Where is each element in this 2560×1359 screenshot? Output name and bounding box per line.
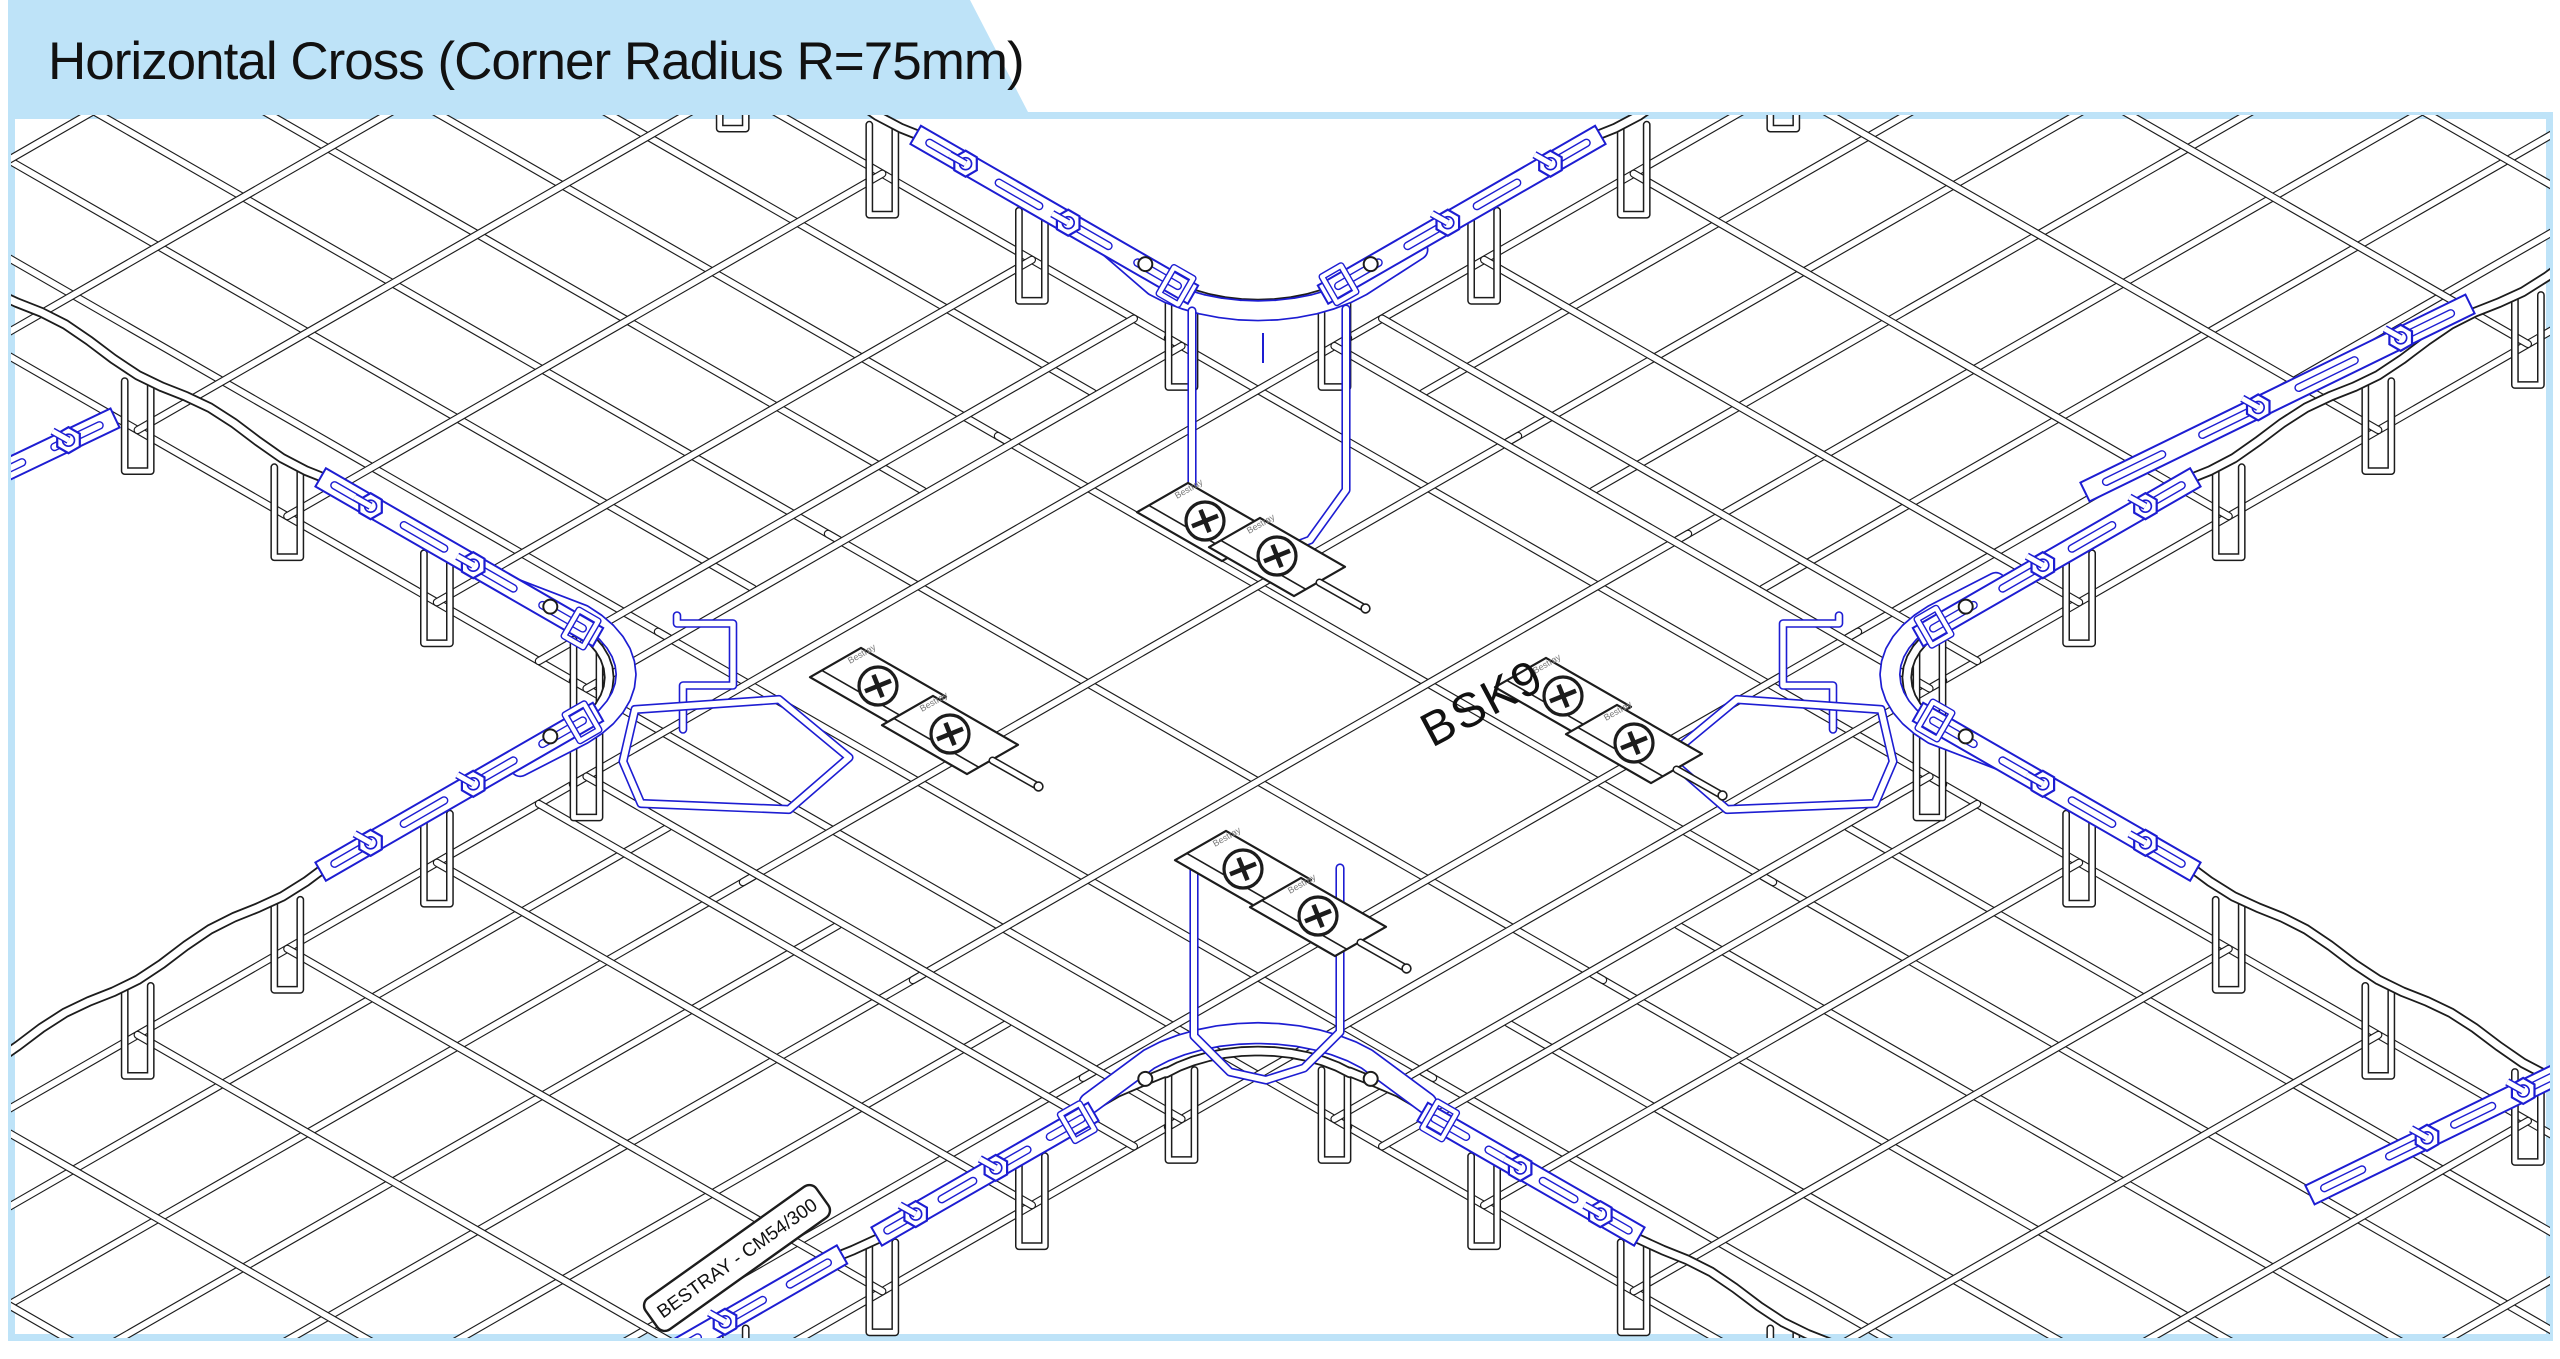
svg-text:Horizontal Cross (Corner Radiu: Horizontal Cross (Corner Radius R=75mm) [48,32,1024,91]
